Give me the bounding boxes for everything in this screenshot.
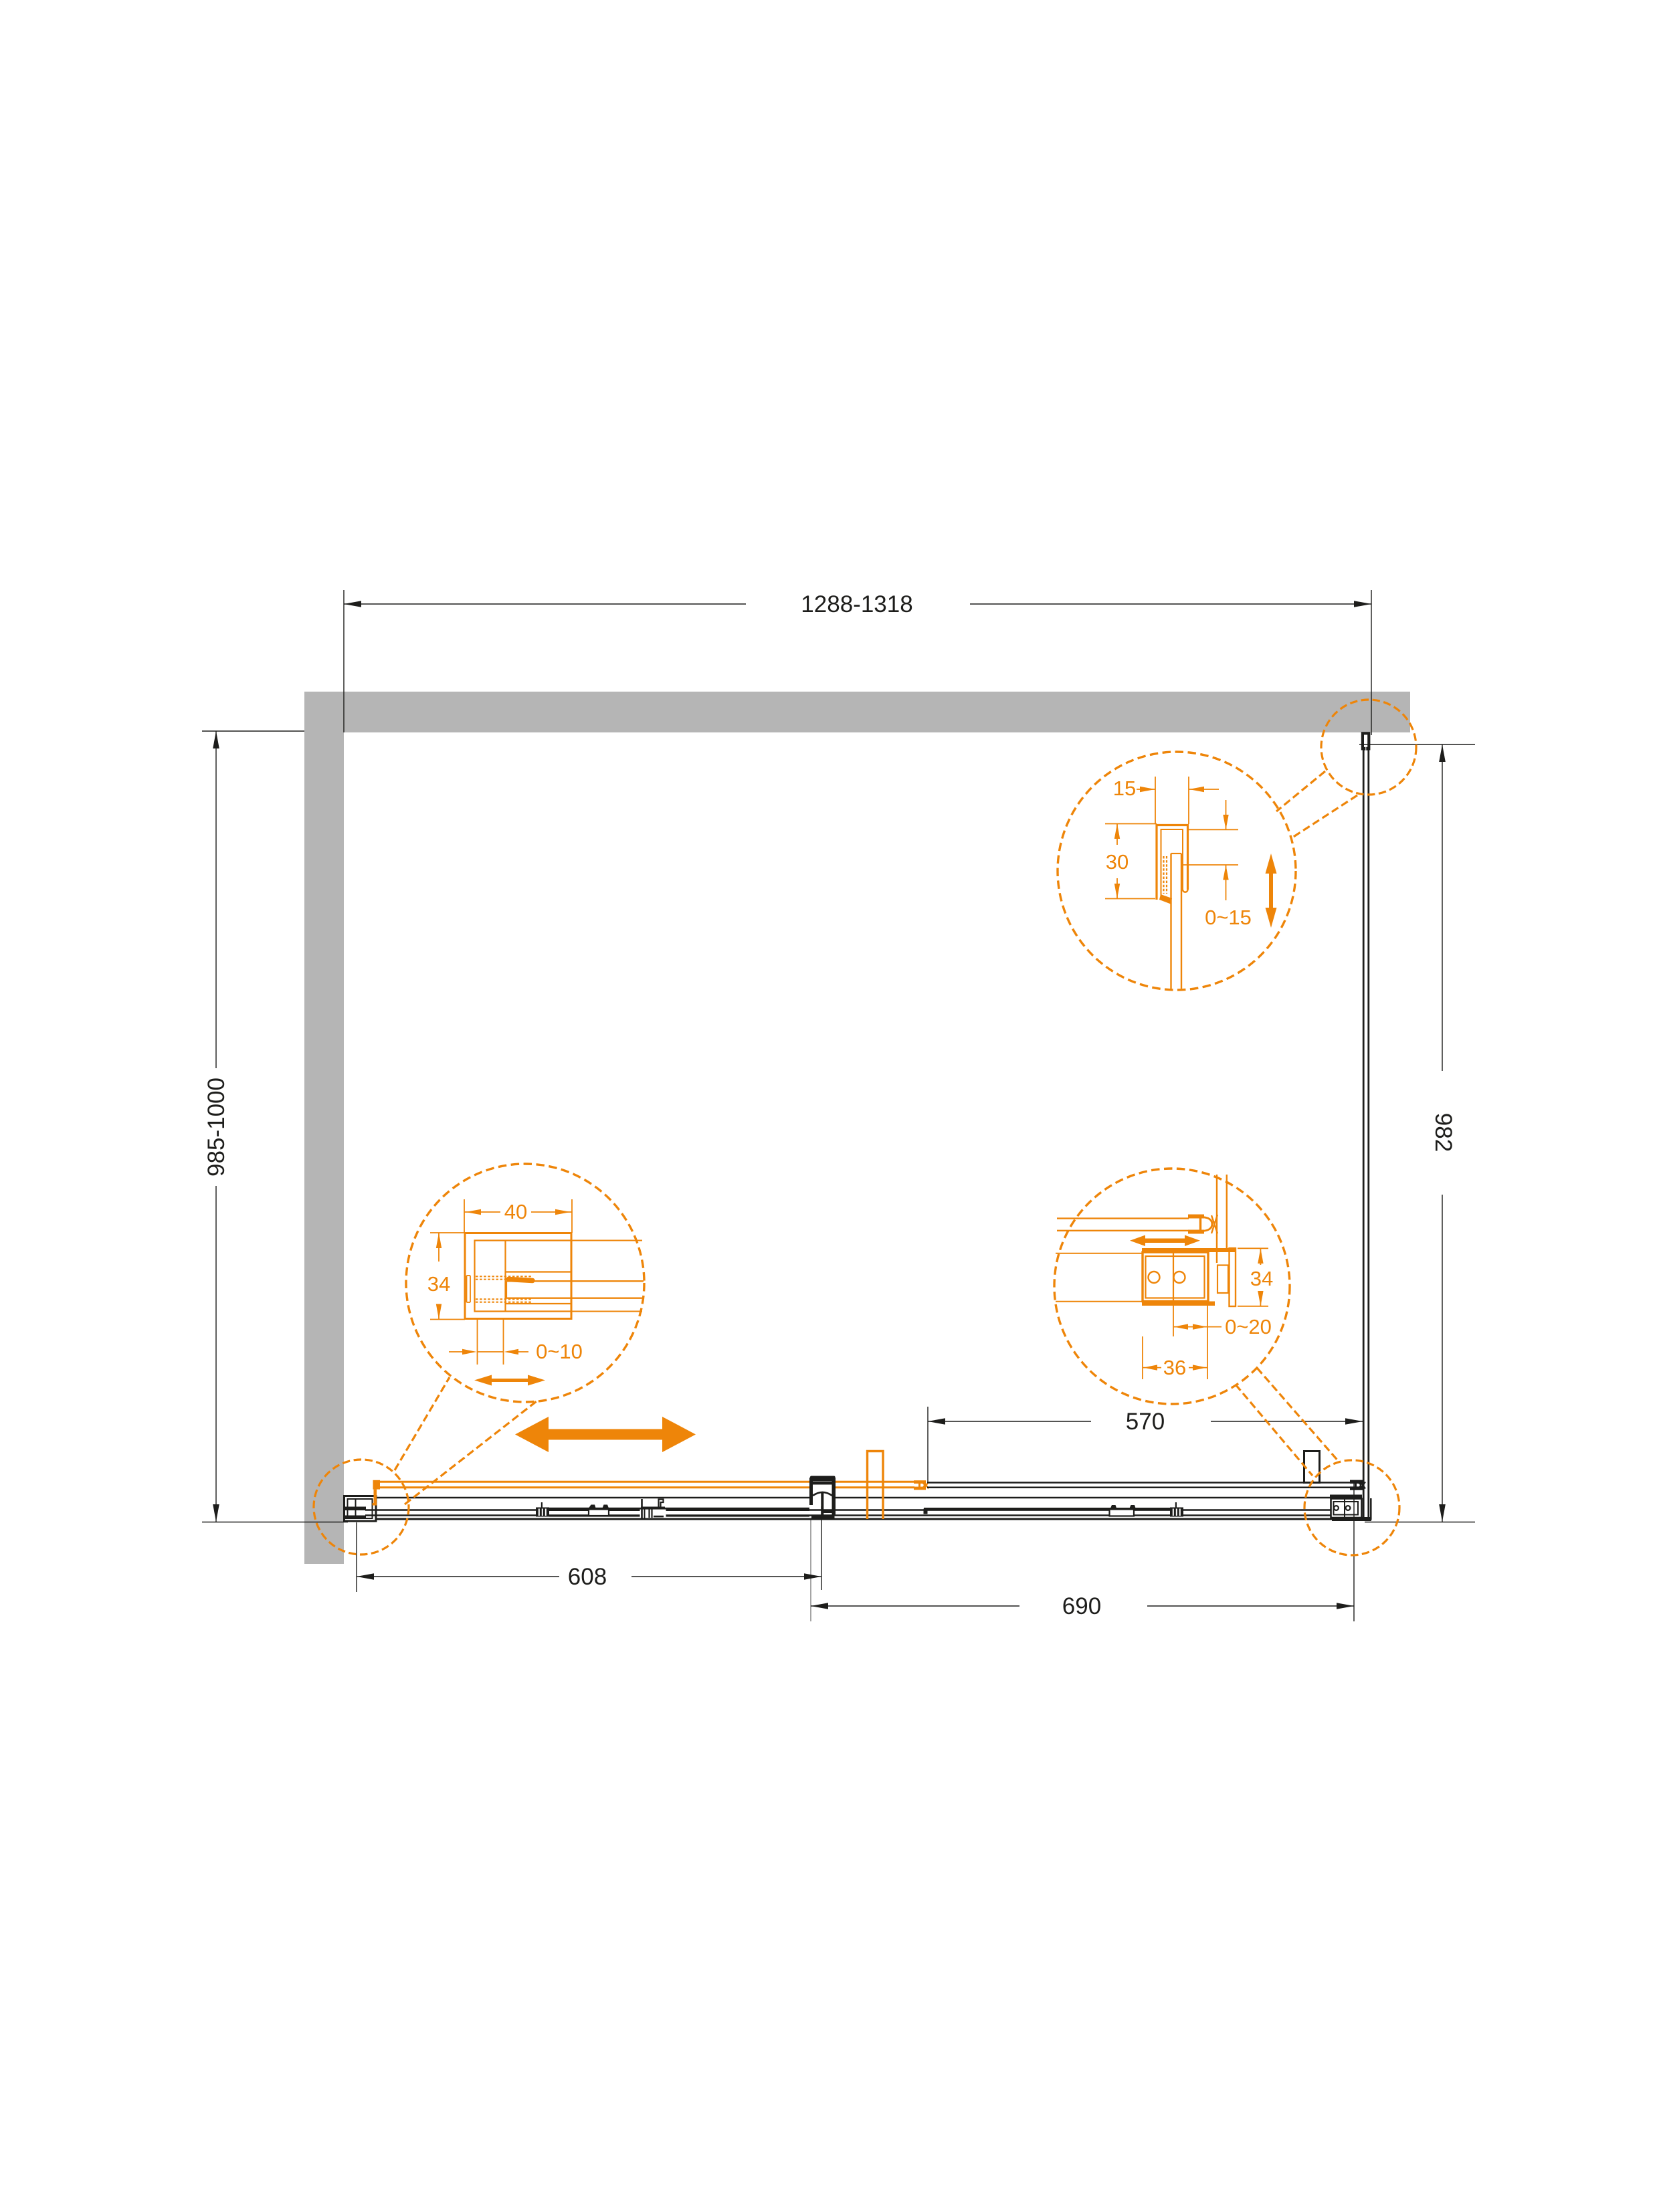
svg-text:608: 608 [568, 1564, 607, 1590]
svg-text:982: 982 [1430, 1113, 1456, 1152]
svg-text:985-1000: 985-1000 [203, 1078, 229, 1177]
svg-text:1288-1318: 1288-1318 [801, 591, 912, 617]
svg-text:570: 570 [1126, 1409, 1165, 1435]
svg-text:30: 30 [1106, 850, 1129, 874]
svg-text:0~10: 0~10 [536, 1340, 583, 1363]
svg-text:36: 36 [1163, 1356, 1186, 1379]
svg-text:0~20: 0~20 [1225, 1315, 1272, 1338]
svg-text:0~15: 0~15 [1205, 906, 1252, 929]
svg-text:40: 40 [504, 1200, 527, 1223]
svg-text:15: 15 [1113, 777, 1136, 800]
svg-text:34: 34 [427, 1272, 450, 1296]
svg-text:34: 34 [1250, 1267, 1273, 1290]
svg-text:690: 690 [1062, 1593, 1101, 1619]
